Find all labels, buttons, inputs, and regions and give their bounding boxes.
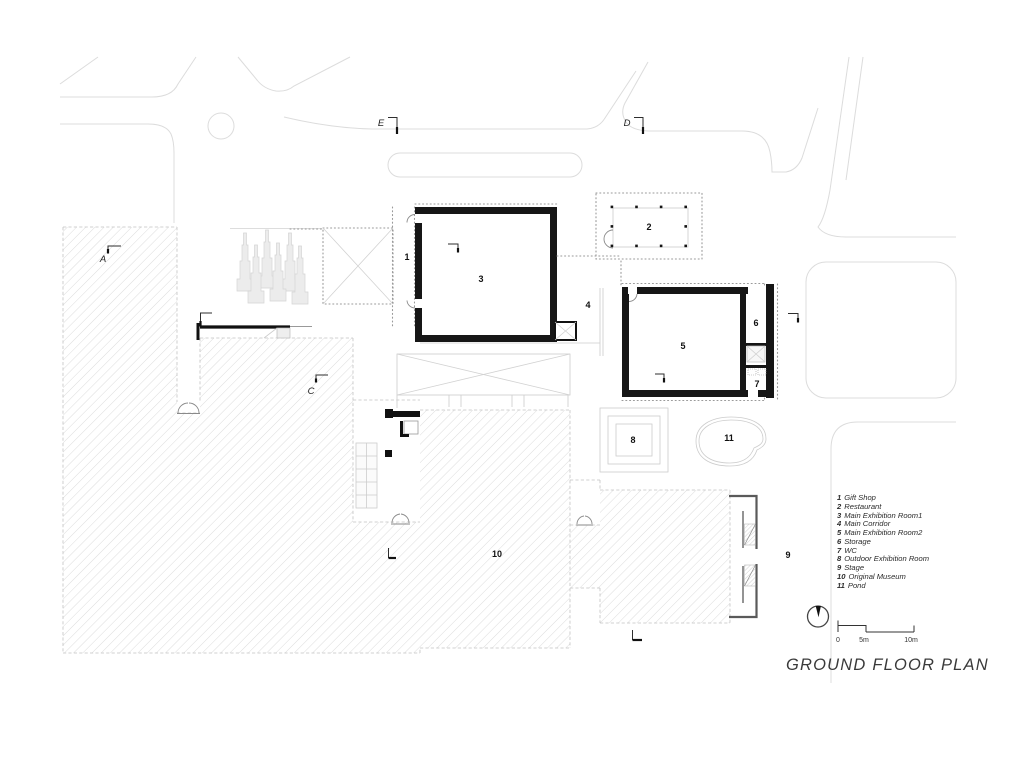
plan-label-11: 11 xyxy=(724,433,734,443)
section-marker-d: D xyxy=(624,118,643,135)
legend-number: 8 xyxy=(837,554,842,563)
wc-lift-box xyxy=(555,322,576,340)
scale-label-0: 0 xyxy=(836,637,840,644)
plan-label-4: 4 xyxy=(585,300,590,310)
legend-name: Restaurant xyxy=(844,502,882,511)
legend-number: 9 xyxy=(837,563,842,572)
section-letter-a: A xyxy=(99,254,106,265)
legend-number: 11 xyxy=(837,581,845,590)
legend-name: Outdoor Exhibition Room xyxy=(844,554,929,563)
legend-number: 10 xyxy=(837,572,846,581)
tree-grove xyxy=(230,229,323,305)
section-letter-e: E xyxy=(378,118,385,129)
legend-row: 10Original Museum xyxy=(837,572,906,581)
legend-row: 9Stage xyxy=(837,563,864,572)
building-3-main-exhibition-room1 xyxy=(407,207,576,342)
plan-label-7: 7 xyxy=(754,379,759,389)
floor-plan-canvas: E D A C 1 2 3 4 5 6 7 8 xyxy=(0,0,1024,768)
legend-name: Storage xyxy=(844,537,871,546)
legend-row: 1Gift Shop xyxy=(837,493,876,502)
building-2-restaurant xyxy=(596,193,702,285)
legend: 1Gift Shop 2Restaurant 3Main Exhibition … xyxy=(836,493,929,590)
legend-name: Main Corridor xyxy=(844,519,890,528)
shelf-grid xyxy=(356,443,377,508)
canopy-lower xyxy=(385,409,420,457)
legend-name: Main Exhibition Room2 xyxy=(844,528,923,537)
scale-bar: 0 5m 10m xyxy=(836,621,918,645)
roundabout xyxy=(208,113,234,139)
legend-row: 11Pond xyxy=(837,581,866,590)
corridor-ramp-box xyxy=(397,354,570,408)
floor-plan-page: E D A C 1 2 3 4 5 6 7 8 xyxy=(0,0,1024,768)
plan-label-9: 9 xyxy=(785,550,790,560)
plan-label-6: 6 xyxy=(753,318,758,328)
shelter-x-structure xyxy=(323,228,393,304)
legend-number: 2 xyxy=(836,502,842,511)
legend-row: 2Restaurant xyxy=(836,502,882,511)
legend-number: 1 xyxy=(837,493,841,502)
legend-number: 4 xyxy=(836,519,842,528)
section-mark xyxy=(201,313,213,326)
north-arrow-icon xyxy=(808,606,829,627)
plan-label-8: 8 xyxy=(630,435,635,445)
page-title: GROUND FLOOR PLAN xyxy=(786,656,989,674)
legend-number: 6 xyxy=(837,537,842,546)
legend-number: 5 xyxy=(837,528,842,537)
plan-label-5: 5 xyxy=(680,341,685,351)
plan-label-2: 2 xyxy=(646,222,651,232)
city-block xyxy=(806,262,956,398)
scale-label-5m: 5m xyxy=(859,637,869,644)
legend-row: 6Storage xyxy=(837,537,871,546)
canopy-upper xyxy=(197,323,313,340)
legend-name: Gift Shop xyxy=(844,493,876,502)
legend-row: 4Main Corridor xyxy=(836,519,891,528)
legend-name: Pond xyxy=(848,581,867,590)
plan-label-1: 1 xyxy=(404,252,409,262)
stage xyxy=(729,496,757,617)
road-median-island xyxy=(388,153,582,177)
section-mark xyxy=(788,314,798,323)
plan-label-10: 10 xyxy=(492,549,502,559)
section-letter-d: D xyxy=(624,118,631,129)
section-marker-e: E xyxy=(378,118,397,135)
plan-label-3: 3 xyxy=(478,274,483,284)
scale-label-10m: 10m xyxy=(904,637,918,644)
legend-row: 8Outdoor Exhibition Room xyxy=(837,554,929,563)
legend-row: 5Main Exhibition Room2 xyxy=(837,528,923,537)
section-letter-c: C xyxy=(308,386,315,397)
legend-name: Stage xyxy=(844,563,864,572)
legend-name: Original Museum xyxy=(848,572,905,581)
